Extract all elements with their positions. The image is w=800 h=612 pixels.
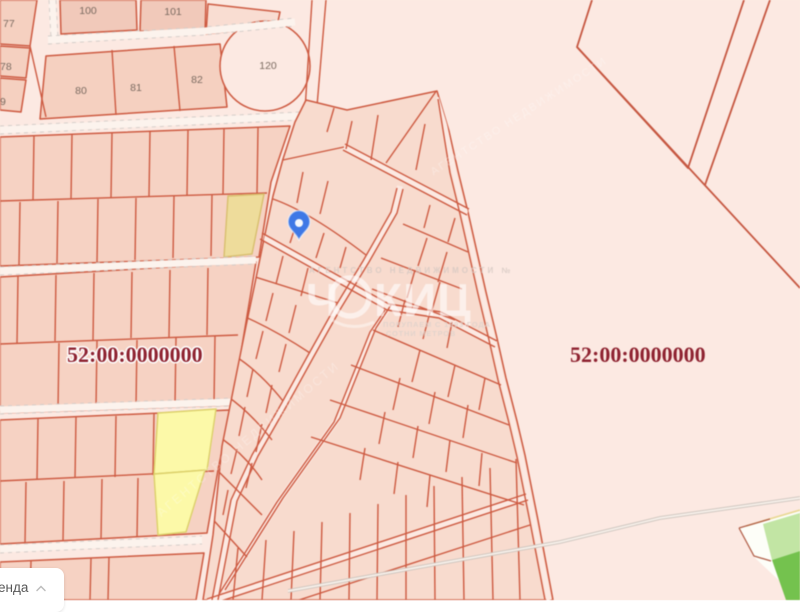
svg-text:120: 120 (259, 60, 277, 72)
svg-text:ПОКУПАЕМ С 1993 ГОДА: ПОКУПАЕМ С 1993 ГОДА (383, 320, 491, 329)
svg-text:80: 80 (75, 85, 87, 97)
svg-text:52:00:0000000: 52:00:0000000 (570, 342, 706, 367)
svg-text:СОТНИ МЕТРОВ: СОТНИ МЕТРОВ (386, 329, 456, 338)
svg-text:82: 82 (191, 74, 203, 86)
svg-text:52:00:0000000: 52:00:0000000 (67, 342, 203, 367)
svg-text:101: 101 (164, 6, 182, 18)
svg-text:81: 81 (130, 82, 142, 94)
svg-text:78: 78 (0, 61, 12, 73)
svg-text:КИЦ: КИЦ (374, 274, 472, 326)
svg-text:100: 100 (79, 5, 97, 17)
svg-text:77: 77 (3, 18, 15, 30)
svg-text:Ч: Ч (306, 274, 339, 326)
svg-text:9: 9 (0, 96, 6, 108)
